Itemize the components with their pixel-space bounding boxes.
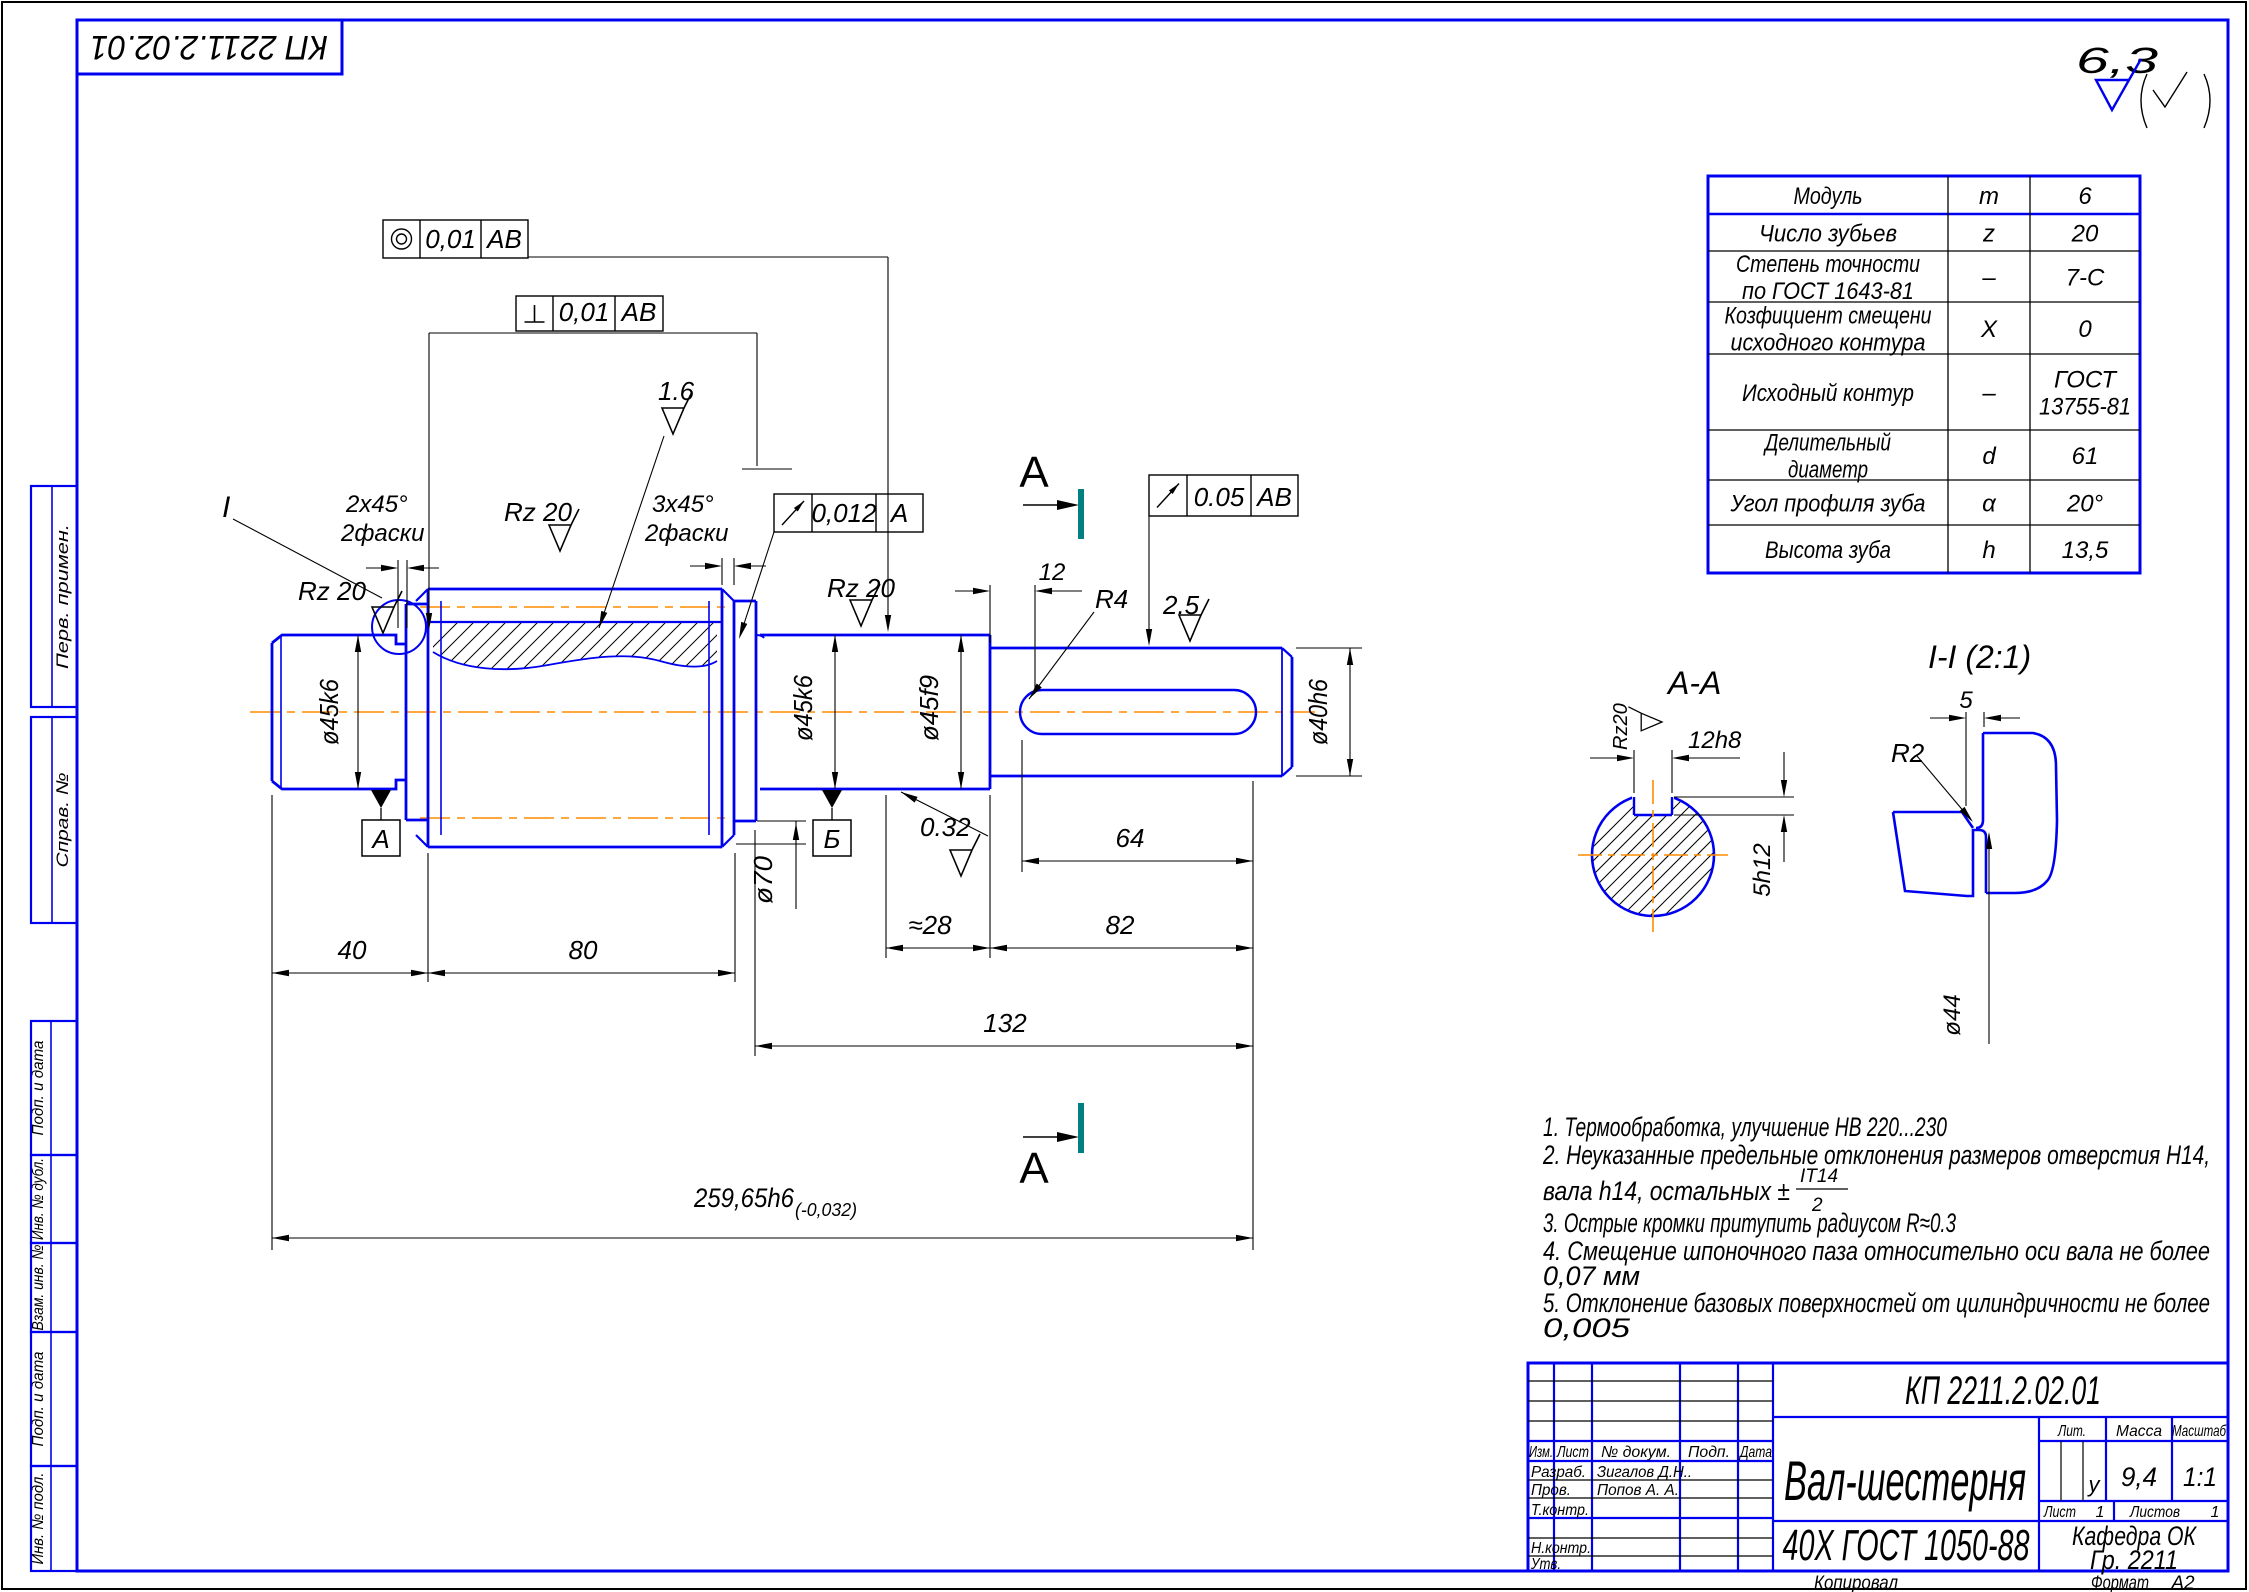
svg-text:Козфициент смещени: Козфициент смещени	[1725, 303, 1932, 330]
svg-text:I: I	[222, 491, 230, 524]
svg-text:I-I (2:1): I-I (2:1)	[1928, 639, 2031, 675]
svg-text:Делительный: Делительный	[1763, 430, 1891, 457]
svg-text:13755-81: 13755-81	[2039, 394, 2131, 421]
svg-text:ø44: ø44	[1939, 994, 1966, 1035]
svg-text:259,65h6: 259,65h6	[693, 1183, 795, 1213]
svg-text:Попов А. А.: Попов А. А.	[1597, 1482, 1679, 1499]
svg-text:ø45k6: ø45k6	[314, 679, 344, 745]
svg-text:64: 64	[1116, 823, 1145, 853]
svg-text:Угол профиля зуба: Угол профиля зуба	[1730, 491, 1926, 518]
svg-text:1: 1	[2096, 1504, 2105, 1521]
svg-text:вала h14, остальных ±: вала h14, остальных ±	[1543, 1176, 1790, 1206]
svg-text:Изм.: Изм.	[1529, 1444, 1553, 1461]
svg-text:9,4: 9,4	[2121, 1462, 2157, 1492]
svg-text:исходного контура: исходного контура	[1731, 330, 1926, 357]
svg-text:Копировал: Копировал	[1814, 1573, 1898, 1592]
svg-text:А: А	[889, 498, 908, 528]
svg-text:Rz 20: Rz 20	[504, 497, 572, 527]
svg-text:Лист: Лист	[2043, 1504, 2076, 1521]
svg-text:А: А	[370, 824, 389, 854]
svg-text:Пров.: Пров.	[1531, 1482, 1571, 1499]
svg-text:2фаски: 2фаски	[644, 520, 728, 547]
svg-text:по ГОСТ 1643-81: по ГОСТ 1643-81	[1742, 278, 1914, 305]
svg-text:Формат: Формат	[2091, 1573, 2149, 1592]
svg-text:2x45°: 2x45°	[345, 491, 408, 518]
svg-text:Степень точности: Степень точности	[1736, 251, 1920, 278]
svg-text:12: 12	[1039, 559, 1066, 586]
svg-text:X: X	[1980, 316, 1998, 343]
svg-text:1. Термообработка, улучшение Н: 1. Термообработка, улучшение НВ 220...23…	[1543, 1112, 1947, 1142]
svg-text:Листов: Листов	[2129, 1504, 2180, 1521]
svg-text:–: –	[1981, 380, 1996, 407]
svg-text:А: А	[1019, 448, 1049, 497]
svg-text:0,07 мм: 0,07 мм	[1543, 1261, 1640, 1291]
svg-text:Гр. 2211: Гр. 2211	[2090, 1545, 2178, 1575]
svg-text:Лист: Лист	[1556, 1444, 1589, 1461]
svg-text:≈28: ≈28	[908, 910, 952, 940]
svg-text:(-0,032): (-0,032)	[795, 1200, 857, 1220]
svg-text:№ докум.: № докум.	[1601, 1444, 1671, 1461]
svg-text:ø45f9: ø45f9	[914, 675, 944, 741]
svg-text:6: 6	[2078, 183, 2092, 210]
svg-text:α: α	[1982, 491, 1997, 518]
svg-text:40: 40	[338, 935, 367, 965]
svg-text:Подп.: Подп.	[1688, 1444, 1730, 1461]
svg-text:Высота зуба: Высота зуба	[1765, 537, 1891, 564]
svg-text:20: 20	[2071, 221, 2099, 248]
svg-text:7-С: 7-С	[2066, 265, 2105, 292]
svg-text:Модуль: Модуль	[1794, 183, 1863, 210]
svg-text:диаметр: диаметр	[1788, 457, 1868, 484]
svg-text:1: 1	[2211, 1504, 2220, 1521]
svg-text:А-А: А-А	[1666, 665, 1721, 701]
svg-text:АВ: АВ	[620, 297, 657, 327]
svg-text:Разраб.: Разраб.	[1531, 1464, 1586, 1481]
svg-text:Подп. и дата: Подп. и дата	[30, 1040, 47, 1135]
svg-text:0: 0	[2078, 316, 2092, 343]
svg-text:0,005: 0,005	[1543, 1313, 1631, 1343]
svg-text:Rz 20: Rz 20	[298, 576, 366, 606]
svg-text:А2: А2	[2170, 1573, 2195, 1592]
svg-text:–: –	[1981, 265, 1996, 292]
svg-text:0,01: 0,01	[425, 224, 476, 254]
svg-text:R2: R2	[1891, 738, 1925, 768]
svg-text:Н.контр.: Н.контр.	[1531, 1540, 1591, 1557]
svg-text:Взам. инв. №: Взам. инв. №	[30, 1245, 47, 1331]
svg-text:12h8: 12h8	[1688, 727, 1742, 754]
svg-text:АВ: АВ	[485, 224, 522, 254]
svg-text:d: d	[1982, 443, 1996, 470]
svg-text:Rz 20: Rz 20	[827, 573, 895, 603]
svg-text:Масса: Масса	[2116, 1423, 2162, 1440]
svg-text:2. Неуказанные предельные откл: 2. Неуказанные предельные отклонения раз…	[1542, 1140, 2210, 1170]
svg-text:АВ: АВ	[1255, 482, 1292, 512]
svg-text:0.32: 0.32	[920, 812, 971, 842]
svg-text:132: 132	[983, 1008, 1027, 1038]
svg-text:6,3: 6,3	[2076, 40, 2158, 81]
svg-text:Дата: Дата	[1738, 1444, 1772, 1461]
svg-text:Зигалов Д.Н..: Зигалов Д.Н..	[1597, 1464, 1692, 1481]
svg-text:5h12: 5h12	[1749, 843, 1776, 896]
svg-text:Rz20: Rz20	[1610, 703, 1632, 750]
svg-text:13,5: 13,5	[2062, 537, 2109, 564]
svg-text:20°: 20°	[2066, 491, 2104, 518]
svg-text:R4: R4	[1095, 584, 1128, 614]
svg-text:Справ. №: Справ. №	[53, 773, 72, 868]
svg-text:Число зубьев: Число зубьев	[1759, 221, 1897, 248]
svg-text:Б: Б	[824, 824, 841, 854]
svg-text:ø70: ø70	[748, 855, 778, 904]
svg-text:КП 2211.2.02.01: КП 2211.2.02.01	[1905, 1369, 2101, 1413]
svg-text:4. Смещение шпоночного паза от: 4. Смещение шпоночного паза относительно…	[1543, 1236, 2210, 1266]
svg-text:0.05: 0.05	[1194, 482, 1245, 512]
svg-text:3x45°: 3x45°	[652, 491, 714, 518]
svg-text:m: m	[1979, 183, 1999, 210]
svg-text:0,012: 0,012	[811, 498, 877, 528]
svg-text:Масштаб: Масштаб	[2172, 1423, 2227, 1440]
svg-text:КП 2211.2.02.01: КП 2211.2.02.01	[90, 28, 328, 66]
svg-text:Исходный контур: Исходный контур	[1742, 380, 1914, 407]
svg-text:61: 61	[2072, 443, 2099, 470]
svg-text:5: 5	[1959, 687, 1973, 714]
svg-text:ø40h6: ø40h6	[1303, 679, 1333, 745]
svg-text:Лит.: Лит.	[2057, 1423, 2086, 1440]
svg-text:2фаски: 2фаски	[340, 520, 424, 547]
svg-text:1.6: 1.6	[658, 376, 695, 406]
svg-text:Инв. № подл.: Инв. № подл.	[30, 1473, 47, 1565]
svg-text:IT14: IT14	[1800, 1166, 1838, 1187]
svg-text:40Х ГОСТ 1050-88: 40Х ГОСТ 1050-88	[1783, 1521, 2030, 1570]
svg-text:2: 2	[1811, 1195, 1823, 1216]
svg-text:Вал-шестерня: Вал-шестерня	[1784, 1449, 2026, 1512]
svg-text:5. Отклонение базовых поверхно: 5. Отклонение базовых поверхностей от ци…	[1543, 1288, 2210, 1318]
svg-text:Подп. и дата: Подп. и дата	[30, 1351, 47, 1446]
svg-text:3. Острые кромки притупить рад: 3. Острые кромки притупить радиусом R≈0.…	[1543, 1208, 1956, 1238]
svg-text:1:1: 1:1	[2183, 1462, 2217, 1492]
svg-text:ø45k6: ø45k6	[788, 675, 818, 741]
svg-text:z: z	[1982, 221, 1995, 248]
svg-text:Т.контр.: Т.контр.	[1531, 1502, 1589, 1519]
svg-text:80: 80	[569, 935, 598, 965]
svg-text:Перв. примен.: Перв. примен.	[53, 524, 72, 669]
svg-text:0,01: 0,01	[559, 297, 610, 327]
svg-text:у: у	[2087, 1472, 2102, 1497]
svg-text:Инв. № дубл.: Инв. № дубл.	[30, 1158, 47, 1240]
svg-text:h: h	[1982, 537, 1995, 564]
svg-text:82: 82	[1106, 910, 1135, 940]
svg-text:ГОСТ: ГОСТ	[2054, 367, 2118, 394]
svg-text:Утв.: Утв.	[1530, 1556, 1561, 1573]
svg-text:А: А	[1019, 1144, 1049, 1193]
